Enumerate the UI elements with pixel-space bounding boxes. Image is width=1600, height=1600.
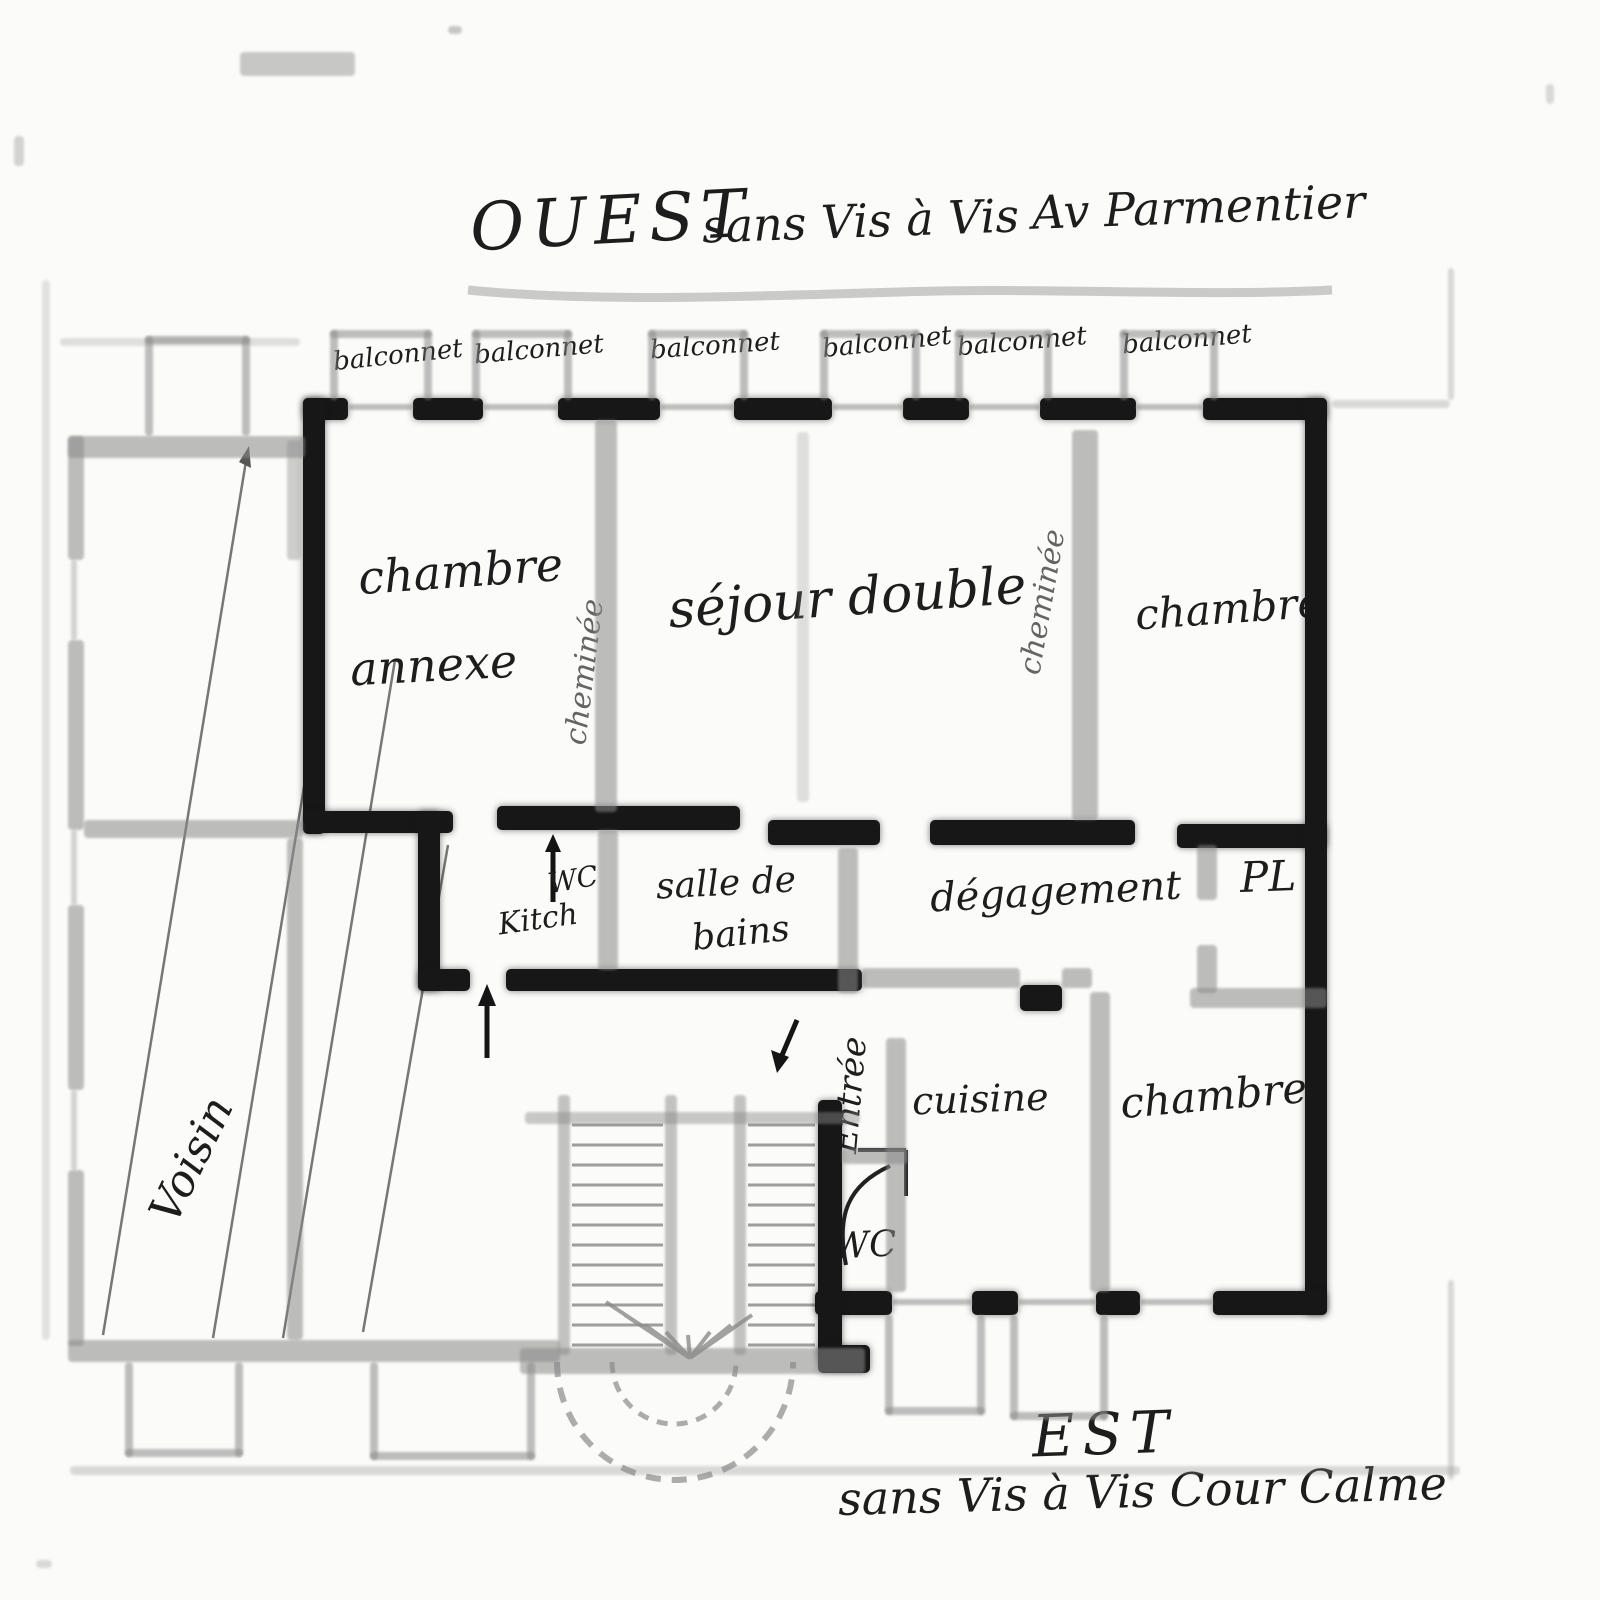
wall-segment	[930, 820, 1135, 845]
wall-segment	[330, 330, 432, 338]
wall-segment	[418, 811, 440, 991]
scribble-wc: WC	[546, 862, 600, 898]
room-label-cuisine: cuisine	[911, 1078, 1049, 1121]
wall-segment	[797, 432, 809, 802]
wall-segment	[972, 1291, 1018, 1315]
title-west-note: sans Vis à Vis	[701, 192, 1019, 249]
wall-segment	[1018, 1299, 1096, 1305]
wall-segment	[885, 1315, 893, 1415]
wall-segment	[348, 404, 413, 410]
wall-segment	[60, 338, 300, 346]
wall-segment	[912, 330, 920, 400]
wall-segment	[1100, 1315, 1108, 1420]
wall-segment	[418, 969, 470, 991]
wall-segment	[740, 330, 748, 400]
wall-segment	[303, 398, 325, 834]
wall-segment	[886, 1038, 906, 1292]
wall-segment	[36, 1560, 52, 1568]
wall-segment	[424, 330, 432, 400]
wall-segment	[14, 136, 24, 166]
wall-segment	[1332, 400, 1450, 408]
wall-segment	[370, 1362, 378, 1460]
wall-segment	[240, 52, 355, 76]
wall-segment	[598, 830, 618, 970]
wall-segment	[862, 968, 1020, 988]
wall-segment	[1044, 330, 1052, 400]
wall-segment	[842, 1148, 908, 1164]
wall-segment	[1546, 84, 1554, 104]
wall-segment	[969, 404, 1040, 410]
wall-segment	[413, 398, 483, 420]
wall-segment	[70, 1466, 1460, 1475]
wall-segment	[1120, 330, 1128, 400]
wall-segment	[818, 1100, 842, 1362]
wall-segment	[370, 1452, 535, 1460]
wall-segment	[955, 330, 963, 400]
wall-segment	[71, 1090, 77, 1170]
wall-segment	[1010, 1315, 1018, 1420]
wall-segment	[1096, 1291, 1140, 1315]
wall-segment	[838, 848, 858, 993]
stair-spiral-outer-arc	[557, 1362, 793, 1480]
wall-segment	[525, 1112, 860, 1124]
wall-segment	[820, 330, 920, 338]
wall-segment	[1305, 398, 1327, 1315]
wall-segment	[1210, 330, 1218, 400]
wall-segment	[648, 330, 656, 400]
wall-segment	[1120, 330, 1218, 338]
wall-segment	[287, 440, 301, 560]
wall-segment	[1090, 992, 1110, 1292]
wall-segment	[734, 1095, 746, 1355]
wall-segment	[977, 1315, 985, 1415]
title-underline	[468, 290, 1332, 298]
wall-segment	[68, 436, 84, 560]
floor-plan: OUEST sans Vis à Vis Av Parmentier balco…	[0, 0, 1600, 1600]
room-label-chambre-right: chambre	[1134, 582, 1324, 637]
room-label-chambre-annexe-2: annexe	[349, 638, 518, 693]
wall-segment	[1197, 945, 1217, 993]
room-label-chambre-annexe-1: chambre	[357, 541, 565, 601]
wall-segment	[564, 330, 572, 400]
wall-segment	[506, 969, 862, 991]
wall-segment	[68, 1340, 560, 1362]
wall-segment	[885, 1407, 985, 1415]
wall-segment	[483, 404, 558, 410]
wall-segment	[768, 820, 880, 845]
wall-segment	[1020, 985, 1062, 1011]
wall-segment	[1448, 268, 1454, 400]
wall-segment	[145, 336, 153, 436]
wall-segment	[235, 1362, 243, 1457]
wall-segment	[1040, 398, 1136, 420]
wall-segment	[71, 560, 77, 640]
wall-segment	[71, 830, 77, 905]
stair-treads	[572, 1125, 815, 1345]
wall-segment	[648, 330, 748, 338]
wall-segment	[287, 838, 303, 1340]
wall-segment	[125, 1362, 133, 1457]
wall-segment	[558, 1095, 570, 1355]
wall-segment	[1213, 1291, 1327, 1315]
wall-segment	[1072, 430, 1098, 820]
wall-segment	[892, 1299, 972, 1305]
wall-segment	[1062, 968, 1092, 988]
wall-segment	[330, 330, 338, 400]
wall-segment	[1448, 1280, 1454, 1480]
wall-segment	[1010, 1412, 1108, 1420]
wall-segment	[472, 330, 572, 338]
wall-segment	[68, 1170, 84, 1346]
wall-segment	[242, 336, 250, 436]
wall-segment	[1136, 404, 1203, 410]
wall-segment	[955, 330, 1052, 338]
wall-segment	[68, 436, 305, 458]
wall-segment	[472, 330, 480, 400]
wall-segment	[1197, 845, 1217, 900]
wall-segment	[734, 398, 832, 420]
title-west-street: Av Parmentier	[1031, 178, 1366, 236]
wall-segment	[558, 398, 660, 420]
wall-segment	[527, 1362, 535, 1460]
wall-segment	[665, 1095, 677, 1355]
wall-segment	[520, 1348, 865, 1374]
wall-segment	[832, 404, 903, 410]
wall-segment	[42, 280, 50, 1340]
wall-segment	[903, 398, 969, 420]
room-label-placard: PL	[1239, 855, 1297, 899]
wall-segment	[68, 905, 84, 1090]
room-label-sdb-1: salle de	[655, 862, 797, 905]
wall-segment	[497, 806, 740, 830]
wall-segment	[68, 640, 84, 830]
wall-segment	[1140, 1299, 1213, 1305]
wall-segment	[820, 330, 828, 400]
wall-segment	[125, 1449, 243, 1457]
wall-segment	[448, 26, 462, 34]
room-label-sdb-2: bains	[690, 911, 791, 957]
wall-segment	[660, 404, 734, 410]
wall-segment	[84, 820, 303, 838]
wall-segment	[595, 420, 617, 812]
